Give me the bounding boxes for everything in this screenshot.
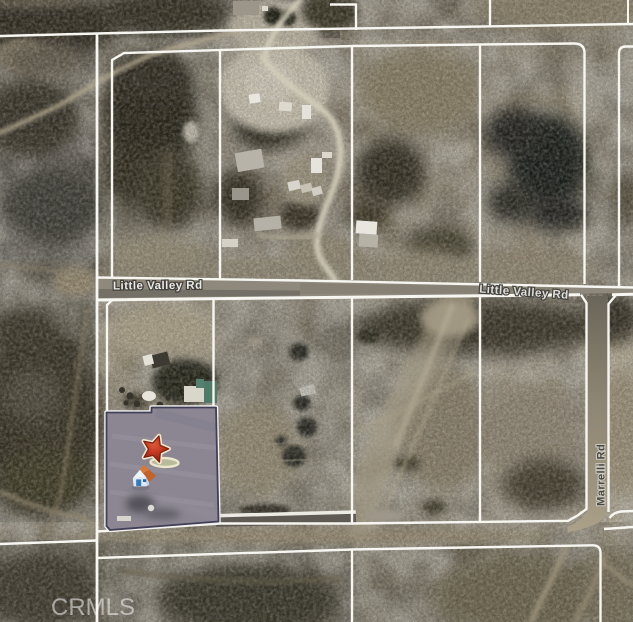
svg-text:Marrelli Rd: Marrelli Rd [596,444,608,506]
svg-text:CRMLS: CRMLS [51,594,135,621]
svg-text:Little Valley Rd: Little Valley Rd [113,279,203,293]
